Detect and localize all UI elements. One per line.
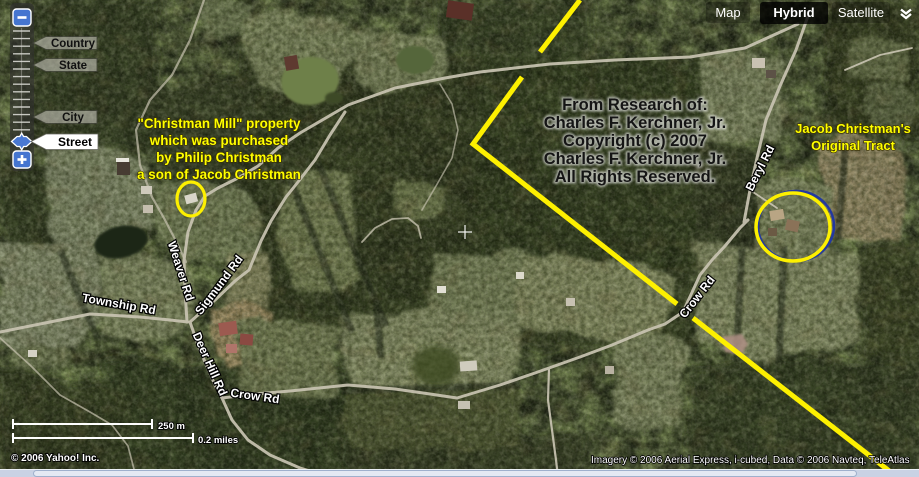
svg-text:Imagery © 2006 Aerial Express,: Imagery © 2006 Aerial Express, i-cubed, … xyxy=(591,455,910,466)
svg-text:Jacob Christman's: Jacob Christman's xyxy=(795,121,911,136)
svg-text:"Christman Mill" property: "Christman Mill" property xyxy=(138,116,302,131)
svg-text:by Philip Christman: by Philip Christman xyxy=(156,150,282,165)
svg-text:From Research of:: From Research of: xyxy=(562,96,708,114)
svg-text:Street: Street xyxy=(58,135,92,149)
svg-text:Country: Country xyxy=(51,38,96,50)
svg-text:250 m: 250 m xyxy=(158,421,185,432)
svg-text:Original Tract: Original Tract xyxy=(811,138,895,153)
svg-text:© 2006 Yahoo! Inc.: © 2006 Yahoo! Inc. xyxy=(11,453,100,464)
svg-text:Hybrid: Hybrid xyxy=(773,5,814,20)
svg-text:Map: Map xyxy=(715,5,740,20)
svg-text:Charles F. Kerchner, Jr.: Charles F. Kerchner, Jr. xyxy=(544,150,727,168)
svg-text:a son of Jacob Christman: a son of Jacob Christman xyxy=(137,167,301,182)
svg-text:Satellite: Satellite xyxy=(838,5,884,20)
svg-text:Charles F. Kerchner, Jr.: Charles F. Kerchner, Jr. xyxy=(544,114,727,132)
svg-text:State: State xyxy=(59,60,87,72)
svg-text:0.2 miles: 0.2 miles xyxy=(198,435,238,446)
svg-text:which was purchased: which was purchased xyxy=(149,133,288,148)
svg-text:Copyright (c) 2007: Copyright (c) 2007 xyxy=(563,132,707,150)
svg-text:All Rights Reserved.: All Rights Reserved. xyxy=(555,168,715,186)
svg-text:City: City xyxy=(62,112,84,124)
